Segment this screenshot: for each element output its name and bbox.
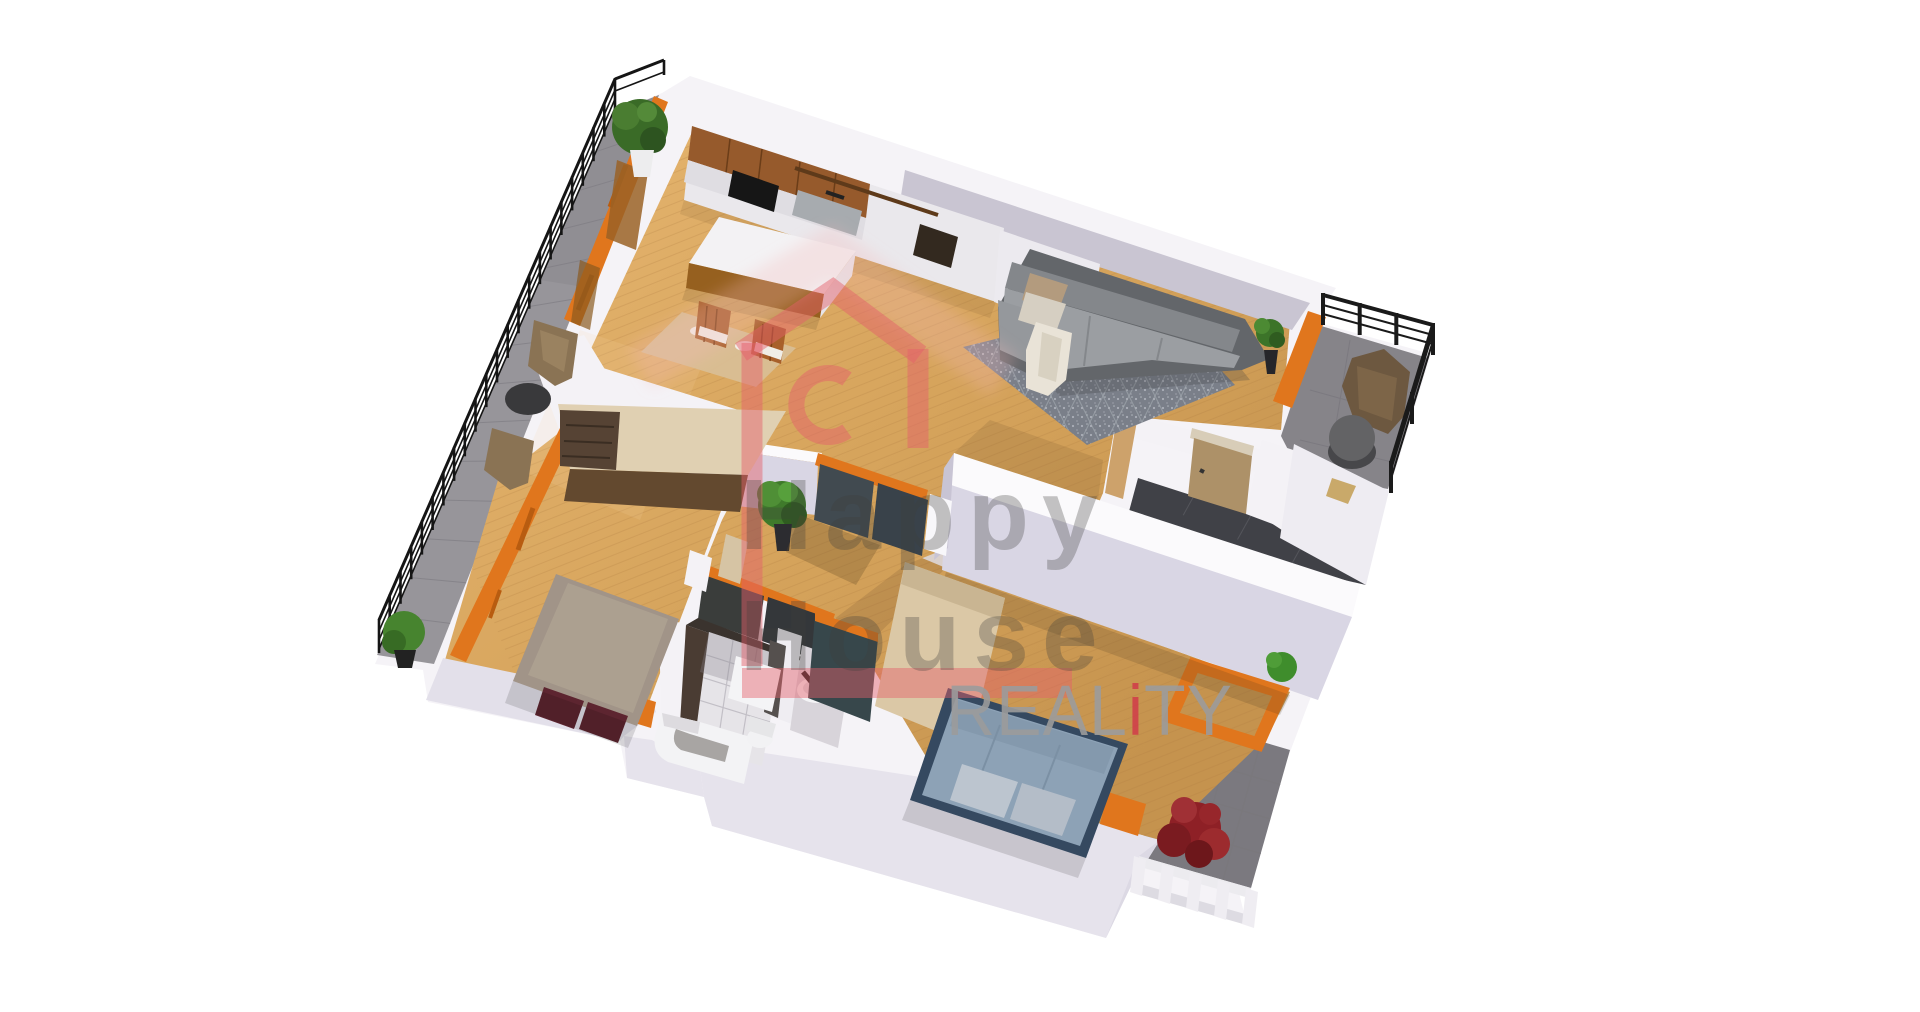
svg-text:Happy: Happy — [740, 459, 1111, 571]
svg-text:REALiTY: REALiTY — [946, 671, 1233, 751]
